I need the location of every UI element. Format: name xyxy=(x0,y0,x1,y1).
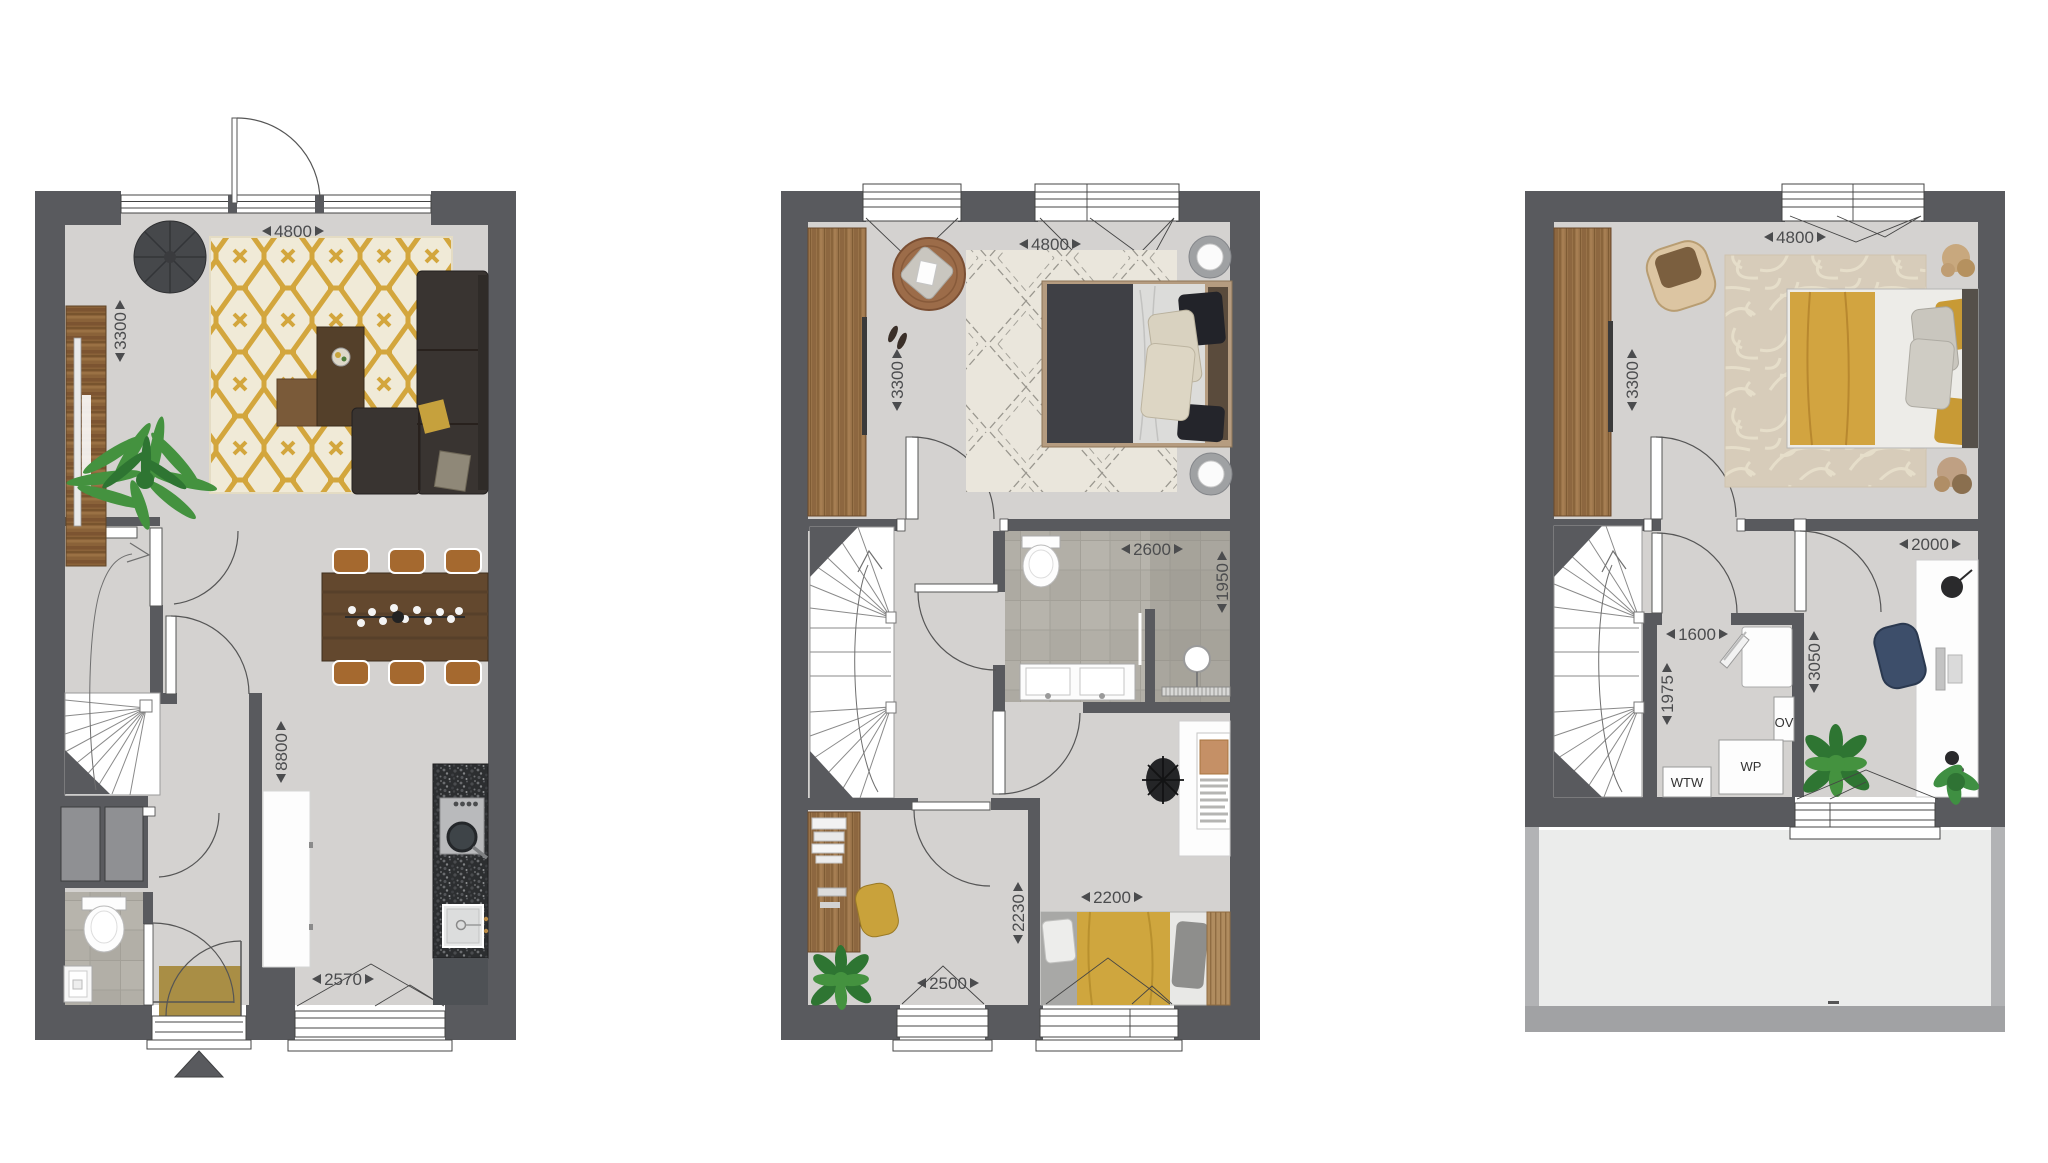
svg-text:WP: WP xyxy=(1741,759,1762,774)
svg-text:2000: 2000 xyxy=(1911,535,1949,554)
svg-text:2570: 2570 xyxy=(324,970,362,989)
svg-text:1600: 1600 xyxy=(1678,625,1716,644)
svg-text:8800: 8800 xyxy=(272,733,291,771)
svg-text:1975: 1975 xyxy=(1658,675,1677,713)
svg-text:2600: 2600 xyxy=(1133,540,1171,559)
svg-text:4800: 4800 xyxy=(1031,235,1069,254)
svg-text:1950: 1950 xyxy=(1213,563,1232,601)
svg-text:3300: 3300 xyxy=(1623,361,1642,399)
svg-text:3050: 3050 xyxy=(1805,643,1824,681)
svg-text:2200: 2200 xyxy=(1093,888,1131,907)
svg-text:3300: 3300 xyxy=(111,312,130,350)
svg-text:OV: OV xyxy=(1775,715,1794,730)
svg-text:WTW: WTW xyxy=(1671,775,1704,790)
svg-text:4800: 4800 xyxy=(1776,228,1814,247)
svg-text:3300: 3300 xyxy=(888,361,907,399)
svg-text:2230: 2230 xyxy=(1009,894,1028,932)
svg-text:4800: 4800 xyxy=(274,222,312,241)
